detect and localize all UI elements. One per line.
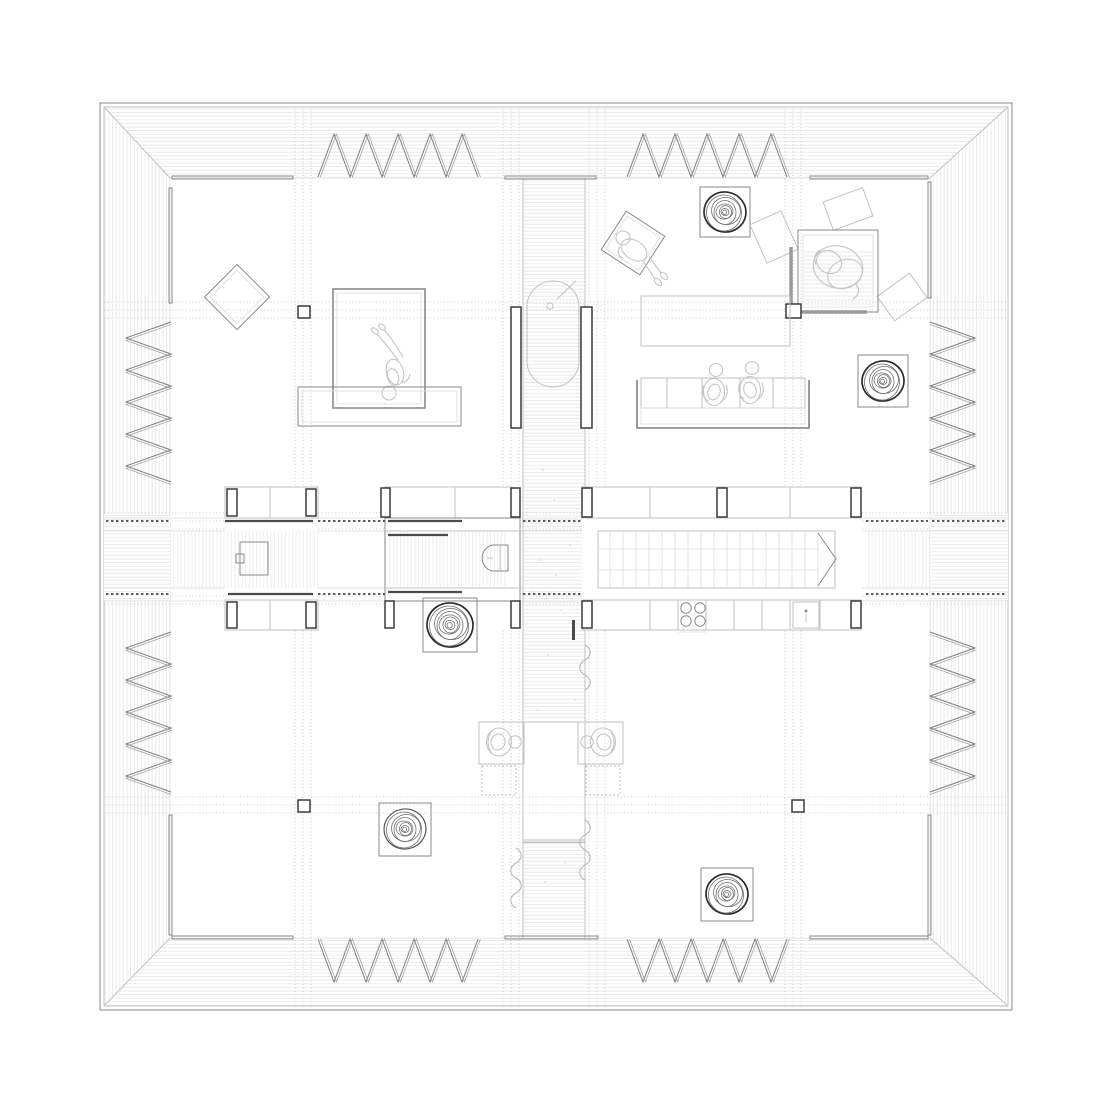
column-sw: [298, 800, 310, 812]
dining-seat-west: [479, 722, 524, 795]
wall-fin: [572, 620, 575, 640]
eave-hatch-top: [104, 107, 1008, 178]
person-dining-east: [581, 728, 616, 756]
table-top: [523, 722, 585, 842]
west-porch-deck: [104, 514, 170, 600]
eave-hatch-bottom: [104, 938, 1008, 1006]
person-dining-west: [487, 728, 522, 756]
west-bed: [333, 289, 425, 408]
wardrobe-module: [225, 487, 318, 630]
person-lying: [370, 323, 410, 400]
bathroom-floor: [389, 532, 507, 586]
sofa: [637, 362, 809, 429]
west-bedroom: [204, 264, 461, 426]
person-on-sofa-2: [739, 362, 764, 404]
tub-privacy-wall-east: [581, 307, 592, 428]
northeast-bed: [786, 230, 878, 318]
corridor-deck-south: [523, 843, 585, 935]
person-on-sofa-1: [703, 364, 728, 406]
bed-bench: [298, 387, 461, 426]
floor-cushion-east: [586, 766, 620, 795]
west-walkway-floor: [172, 531, 225, 588]
column-nw: [298, 306, 310, 318]
rug-frame: [700, 187, 750, 237]
spiral-rug-southwest: [379, 803, 431, 856]
corridor-deck-north: [523, 180, 585, 720]
rug-frame: [858, 355, 908, 407]
lounge-chair: [204, 264, 269, 329]
duvet-swirl: [808, 240, 867, 299]
east-porch-deck: [930, 514, 1008, 600]
cushion-3: [877, 273, 927, 321]
central-corridor: [511, 178, 592, 938]
east-walkway-floor: [866, 531, 930, 588]
floor-plan-drawing: [0, 0, 1116, 1116]
person-at-desk: [616, 231, 669, 287]
spiral-rug-southeast: [701, 868, 753, 921]
dining-table: [523, 722, 585, 843]
stair-kitchen-module: [572, 487, 862, 640]
curtain-3: [511, 848, 522, 908]
wardrobe-floor: [225, 531, 318, 588]
living-table: [641, 296, 790, 346]
column-se: [792, 800, 804, 812]
tub-privacy-wall-west: [511, 307, 521, 428]
column-ne: [786, 304, 801, 318]
scatter-cushions: [750, 188, 927, 321]
northeast-zone: [601, 187, 927, 428]
spiral-rug-east: [858, 355, 908, 407]
cushion-2: [823, 188, 873, 231]
sofa-cushions: [641, 378, 805, 408]
study-desk: [601, 211, 669, 287]
spiral-rug-north: [700, 187, 750, 237]
